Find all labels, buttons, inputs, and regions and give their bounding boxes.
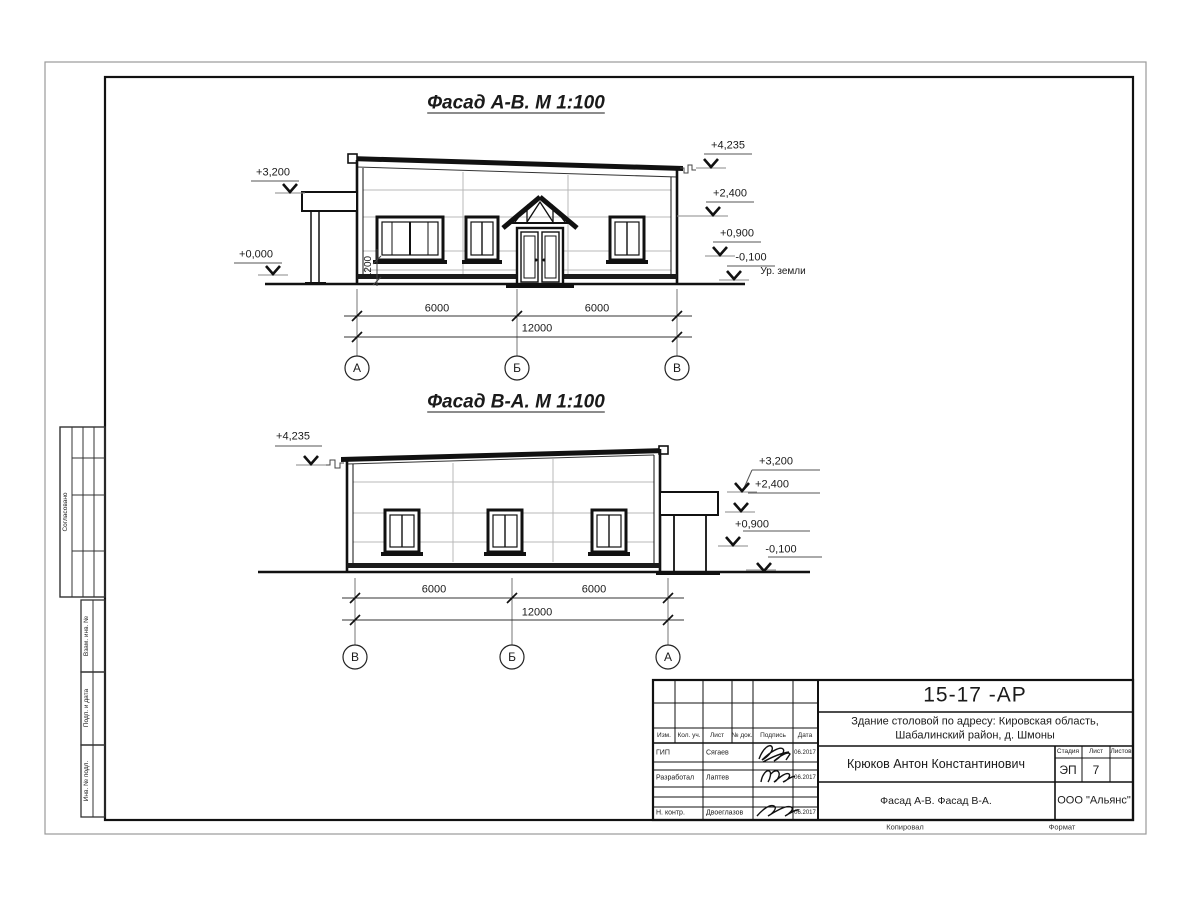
stage-value: ЭП [1059, 764, 1076, 776]
f2-porch [656, 492, 720, 575]
row-dev-role: Разработал [656, 775, 694, 782]
col-doc: № док. [732, 733, 753, 740]
project-name-line1: Здание столовой по адресу: Кировская обл… [851, 717, 1099, 728]
f1-ground-level-label: Ур. земли [760, 267, 805, 277]
signature-gip [759, 746, 790, 762]
f1-dim-total: 12000 [522, 324, 553, 335]
facade-av-drawing [234, 154, 775, 380]
sheets-label: Листов [1110, 749, 1131, 756]
doc-number: 15-17 -АР [923, 685, 1027, 706]
stamp-agreed-label: Согласовано [63, 492, 70, 531]
row-ncontr-date: 06.2017 [794, 810, 816, 816]
f1-mark-right-mid: +0,900 [720, 229, 754, 240]
facade-va-title: Фасад В-А. М 1:100 [427, 393, 605, 412]
f1-porch [302, 192, 357, 283]
col-podpis: Подпись [760, 733, 786, 740]
f1-mark-left-zero: +0,000 [239, 250, 273, 261]
f2-windows [381, 510, 630, 556]
f2-mark-right-ground: -0,100 [765, 545, 796, 556]
f1-mark-right-top: +4,235 [711, 141, 745, 152]
f2-dim-span2: 6000 [582, 585, 606, 596]
f2-axis-v: В [351, 651, 359, 663]
row-gip-role: ГИП [656, 750, 670, 757]
footer-copied-label: Копировал [886, 823, 924, 831]
drawing-sheet-page: { "drawing": { "facade_av": { "title": "… [0, 0, 1200, 900]
f2-axis-b: Б [508, 651, 516, 663]
company-name: ООО "Альянс" [1057, 796, 1131, 807]
f1-axis-a: А [353, 362, 361, 374]
f1-mark-right-upper: +2,400 [713, 189, 747, 200]
f2-dim-span1: 6000 [422, 585, 446, 596]
footer-format-label: Формат [1049, 823, 1076, 831]
row-gip-name: Сягаев [706, 750, 729, 757]
stamp-inv-podl-label: Инв. № подл. [84, 761, 91, 802]
row-ncontr-role: Н. контр. [656, 810, 685, 817]
row-dev-date: 06.2017 [794, 775, 816, 781]
f2-mark-right-mid: +0,900 [735, 520, 769, 531]
f1-mark-left-top: +3,200 [256, 168, 290, 179]
f2-axis-a: А [664, 651, 672, 663]
f2-mark-left-top: +4,235 [276, 432, 310, 443]
signature-developer [761, 771, 795, 782]
facade-av-title: Фасад А-В. М 1:100 [427, 94, 605, 113]
f1-roof [348, 154, 696, 177]
f2-elevation-marks [275, 446, 822, 571]
col-list: Лист [710, 733, 724, 740]
f1-mark-right-ground: -0,100 [735, 253, 766, 264]
f2-plinth [347, 563, 660, 568]
f1-sill-height-dim: 1200 [364, 256, 374, 278]
f2-mark-right-top: +3,200 [759, 457, 793, 468]
f2-dim-total: 12000 [522, 608, 553, 619]
stage-label: Стадия [1057, 749, 1079, 756]
f2-mark-right-upper: +2,400 [755, 480, 789, 491]
row-gip-date: 06.2017 [794, 750, 816, 756]
col-izm: Изм. [657, 733, 671, 740]
row-dev-name: Лаптев [706, 775, 729, 782]
author-name: Крюков Антон Константинович [847, 758, 1025, 771]
stamp-podp-data-label: Подп. и дата [84, 689, 91, 727]
col-kol-uch: Кол. уч. [677, 733, 700, 740]
stamp-zam-inv-label: Взам. инв. № [84, 616, 91, 656]
col-data: Дата [798, 733, 812, 740]
f1-dim-span2: 6000 [585, 304, 609, 315]
sheet-label: Лист [1089, 749, 1103, 756]
project-name-line2: Шабалинский район, д. Шмоны [895, 731, 1055, 742]
f1-dim-span1: 6000 [425, 304, 449, 315]
drawing-title: Фасад А-В. Фасад В-А. [880, 796, 992, 807]
sheet-value: 7 [1093, 764, 1100, 776]
row-ncontr-name: Двоеглазов [706, 810, 743, 817]
f1-axis-b: Б [513, 362, 521, 374]
f2-roof [326, 446, 668, 468]
f1-axis-v: В [673, 362, 681, 374]
facade-va-drawing [258, 446, 822, 669]
